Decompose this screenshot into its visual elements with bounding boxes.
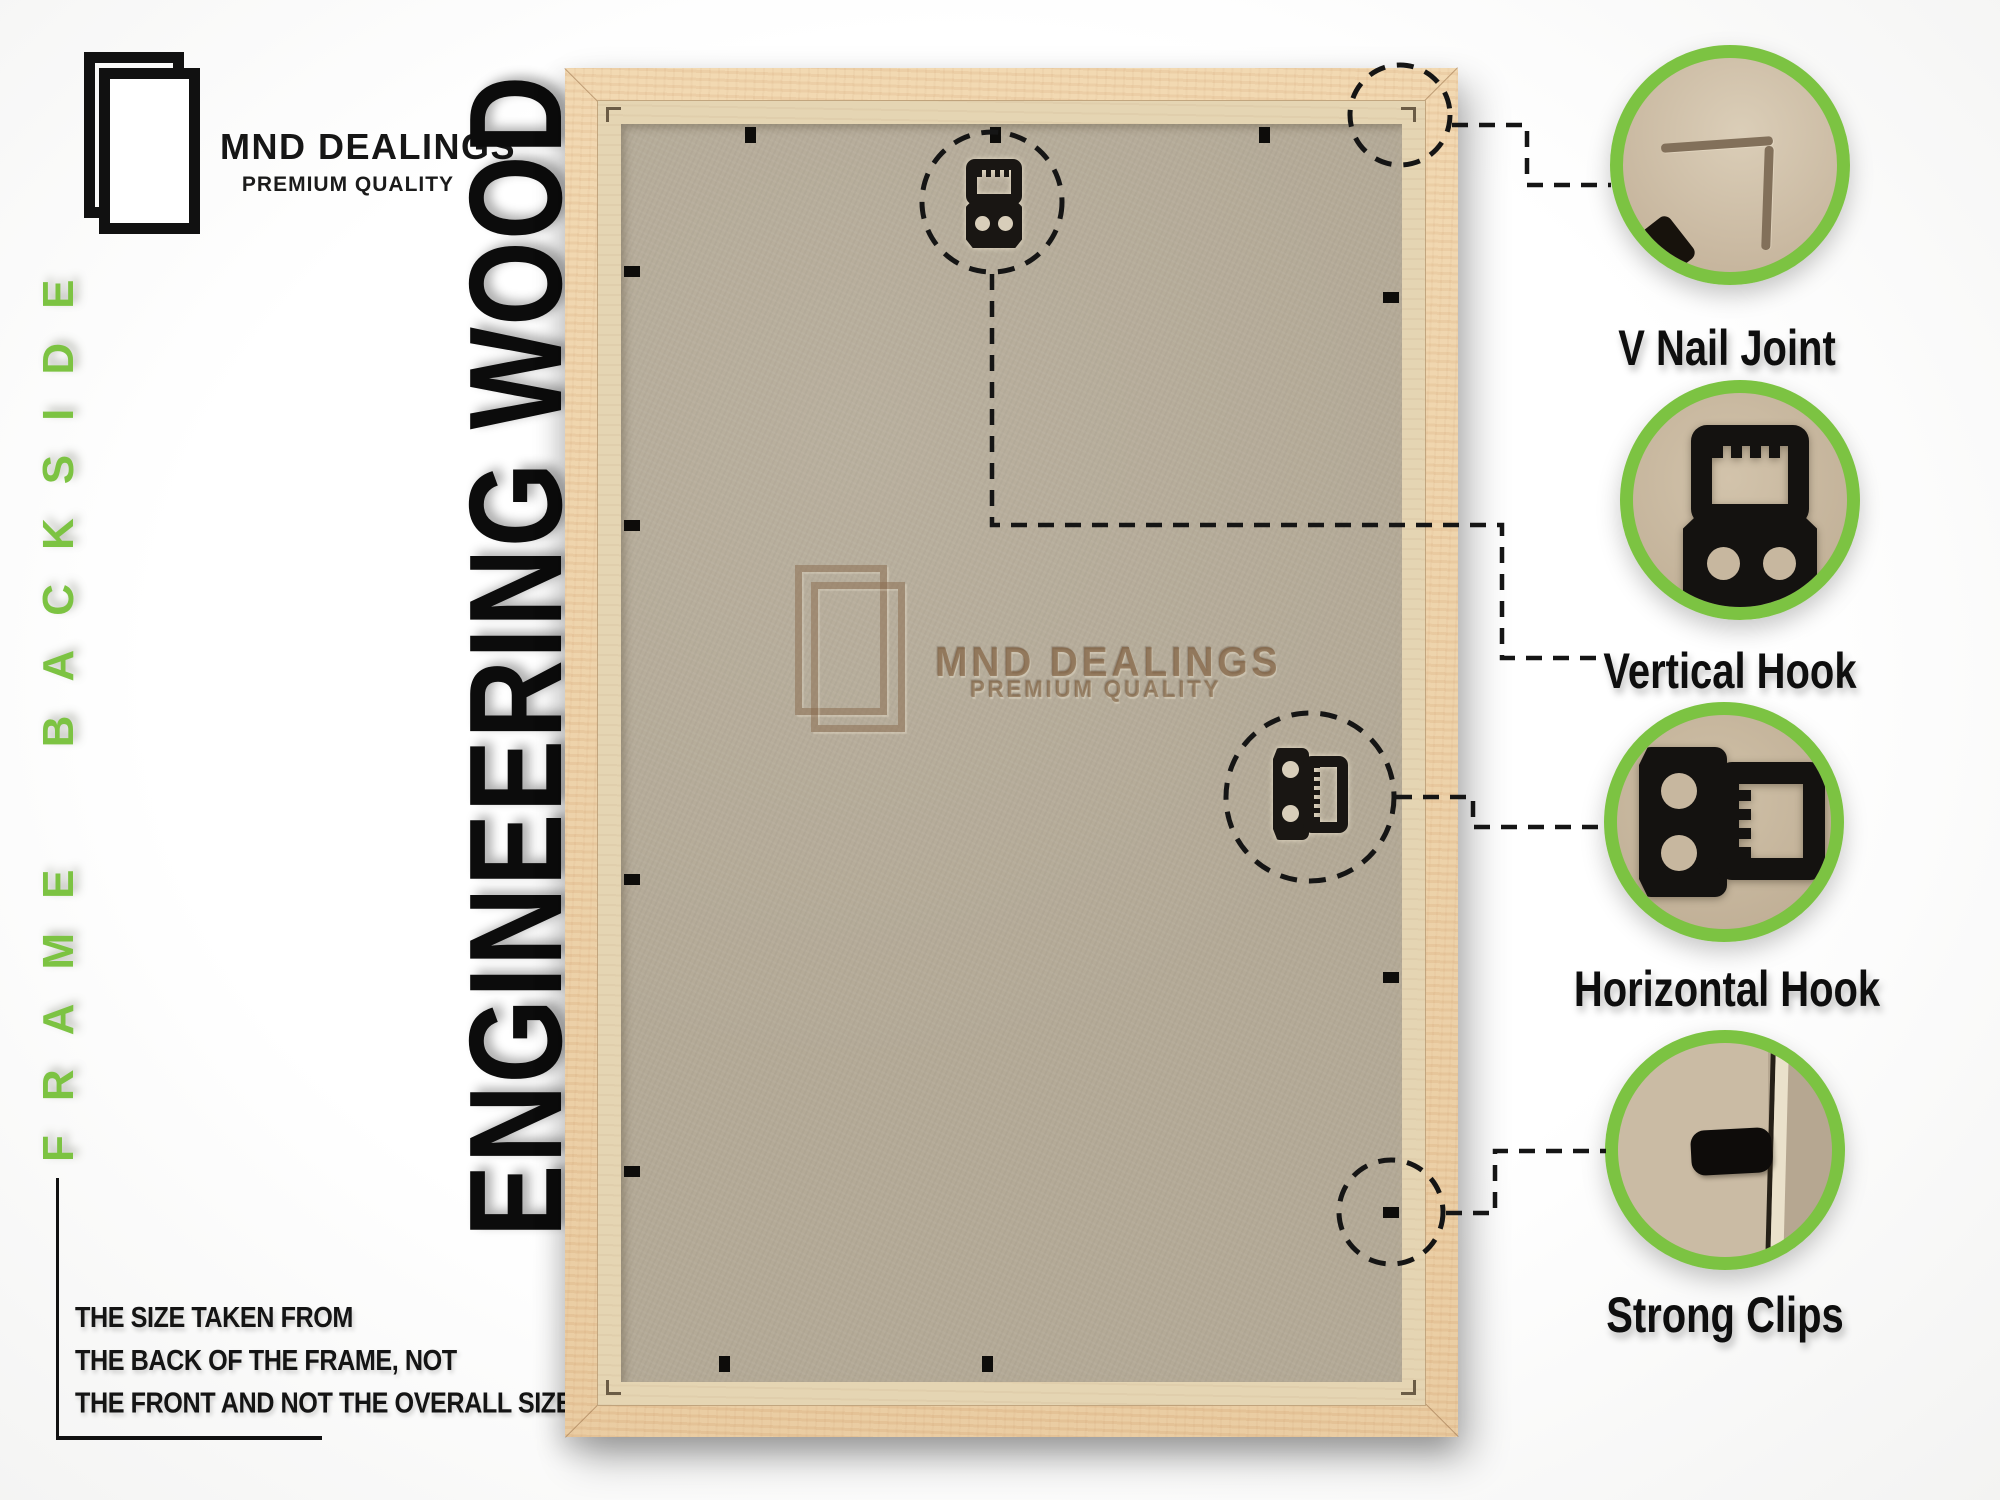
horizontal-hook-loop (1303, 756, 1348, 833)
vertical-hook-icon (1683, 425, 1817, 613)
screw-hole (1661, 773, 1697, 809)
callout-label-strong-clips: Strong Clips (1606, 1285, 1843, 1343)
backboard-clip (624, 266, 640, 277)
screw-hole (975, 216, 990, 231)
size-note: THE SIZE TAKEN FROM THE BACK OF THE FRAM… (75, 1296, 579, 1424)
big-title-engineering-wood: ENGINEERING WOOD (440, 215, 544, 1237)
backboard-clip (990, 127, 1001, 143)
screw-hole (1282, 805, 1299, 822)
backboard-clip (1383, 972, 1399, 983)
connector-v-nail-joint (1452, 125, 1611, 185)
frame-backside-infographic: MND DEALINGS PREMIUM QUALITY FRAME BACKS… (0, 0, 2000, 1500)
hook-plate (1639, 747, 1727, 897)
v-nail-corner-mark (1401, 1380, 1416, 1395)
screw-hole (998, 216, 1013, 231)
vertical-hook (966, 159, 1022, 249)
side-label-frame-backside: FRAME BACKSIDE (34, 326, 78, 1162)
note-bracket-vertical-line (56, 1178, 59, 1439)
v-nail-groove-icon (1661, 136, 1773, 153)
note-line: THE FRONT AND NOT THE OVERALL SIZE. (75, 1381, 579, 1424)
hook-loop (1691, 425, 1809, 525)
strong-clip-icon (1690, 1126, 1774, 1175)
note-bracket-horizontal-line (56, 1436, 322, 1440)
screw-hole (1661, 835, 1697, 871)
screw-hole (1282, 761, 1299, 778)
v-nail-corner-mark (606, 1380, 621, 1395)
backboard-clip (624, 520, 640, 531)
screw-hole (1763, 547, 1796, 580)
vertical-hook-plate (966, 201, 1022, 248)
callout-photo-v-nail-joint (1610, 45, 1850, 285)
corner-shadow (1610, 213, 1698, 285)
backboard-clip (624, 1166, 640, 1177)
v-nail-groove-icon (1761, 146, 1774, 250)
brand-name: MND DEALINGS (220, 126, 476, 168)
backboard-clip (1383, 1207, 1399, 1218)
screw-hole (1707, 547, 1740, 580)
callout-label-v-nail-joint: V Nail Joint (1618, 318, 1836, 376)
v-nail-corner-mark (606, 107, 621, 122)
connector-strong-clips (1446, 1151, 1606, 1213)
callout-photo-horizontal-hook (1604, 702, 1844, 942)
note-line: THE SIZE TAKEN FROM (75, 1296, 579, 1339)
callout-label-vertical-hook: Vertical Hook (1603, 641, 1856, 699)
vertical-hook-loop (966, 159, 1022, 205)
callout-photo-strong-clips (1605, 1030, 1845, 1270)
horizontal-hook (1273, 748, 1349, 840)
hook-plate (1683, 517, 1817, 613)
watermark-tagline: PREMIUM QUALITY (970, 676, 1221, 704)
backboard-clip (745, 127, 756, 143)
callout-photo-vertical-hook (1620, 380, 1860, 620)
backboard-clip (1383, 292, 1399, 303)
backboard-clip (719, 1356, 730, 1372)
callout-label-horizontal-hook: Horizontal Hook (1574, 959, 1880, 1017)
note-line: THE BACK OF THE FRAME, NOT (75, 1339, 579, 1382)
brand-tagline: PREMIUM QUALITY (220, 173, 476, 197)
hook-loop (1717, 762, 1825, 880)
backboard-clip (624, 874, 640, 885)
brand-text: MND DEALINGS PREMIUM QUALITY (220, 126, 476, 197)
backboard-clip (1259, 127, 1270, 143)
horizontal-hook-icon (1639, 747, 1829, 897)
watermark-logo-icon (811, 582, 905, 732)
v-nail-corner-mark (1401, 107, 1416, 122)
brand-logo-rect-front (99, 68, 200, 234)
backboard-clip (982, 1356, 993, 1372)
